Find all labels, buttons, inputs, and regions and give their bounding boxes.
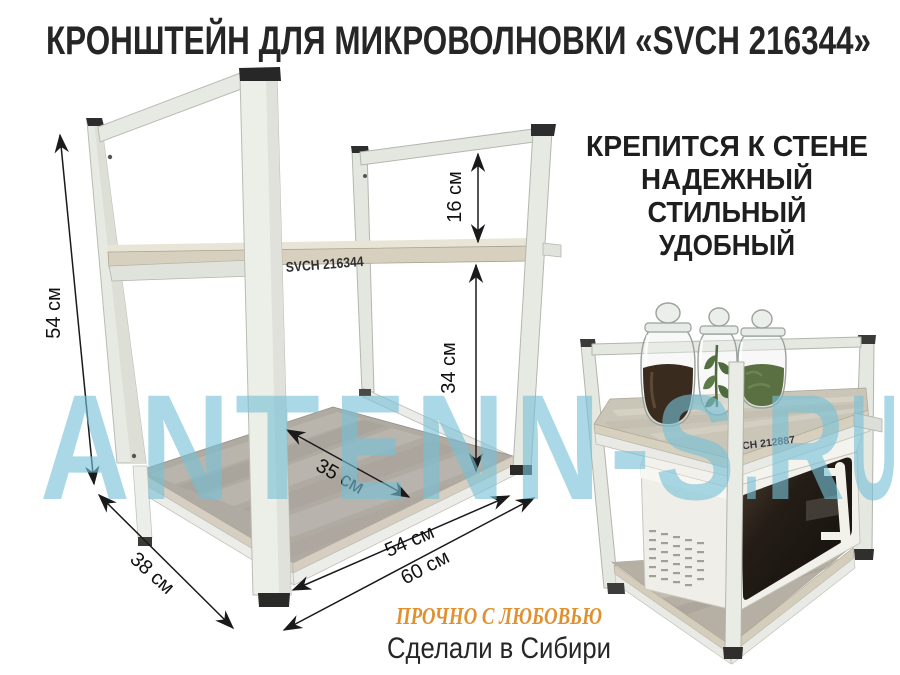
svg-text:S: S: [655, 363, 735, 531]
svg-text:Сделали в Сибири: Сделали в Сибири: [387, 632, 611, 665]
svg-text:УДОБНЫЙ: УДОБНЫЙ: [659, 228, 795, 262]
svg-text:16 см: 16 см: [444, 171, 466, 223]
svg-text:НАДЕЖНЫЙ: НАДЕЖНЫЙ: [641, 162, 813, 196]
svg-text:R: R: [765, 363, 845, 531]
svg-text:.: .: [743, 363, 760, 531]
svg-text:N: N: [140, 363, 230, 531]
svg-text:U: U: [850, 363, 898, 531]
svg-text:A: A: [40, 363, 130, 531]
svg-text:КРОНШТЕЙН ДЛЯ МИКРОВОЛНОВКИ «S: КРОНШТЕЙН ДЛЯ МИКРОВОЛНОВКИ «SVCH 216344…: [46, 17, 871, 63]
svg-text:N: N: [515, 363, 600, 531]
svg-text:СТИЛЬНЫЙ: СТИЛЬНЫЙ: [648, 195, 807, 229]
svg-text:N: N: [415, 363, 505, 531]
svg-text:КРЕПИТСЯ К СТЕНЕ: КРЕПИТСЯ К СТЕНЕ: [586, 131, 868, 163]
svg-text:T: T: [235, 363, 320, 531]
svg-text:E: E: [335, 363, 405, 531]
svg-text:54 см: 54 см: [43, 287, 65, 339]
svg-text:ПРОЧНО С ЛЮБОВЬЮ: ПРОЧНО С ЛЮБОВЬЮ: [395, 604, 602, 630]
svg-text:-: -: [610, 363, 650, 531]
